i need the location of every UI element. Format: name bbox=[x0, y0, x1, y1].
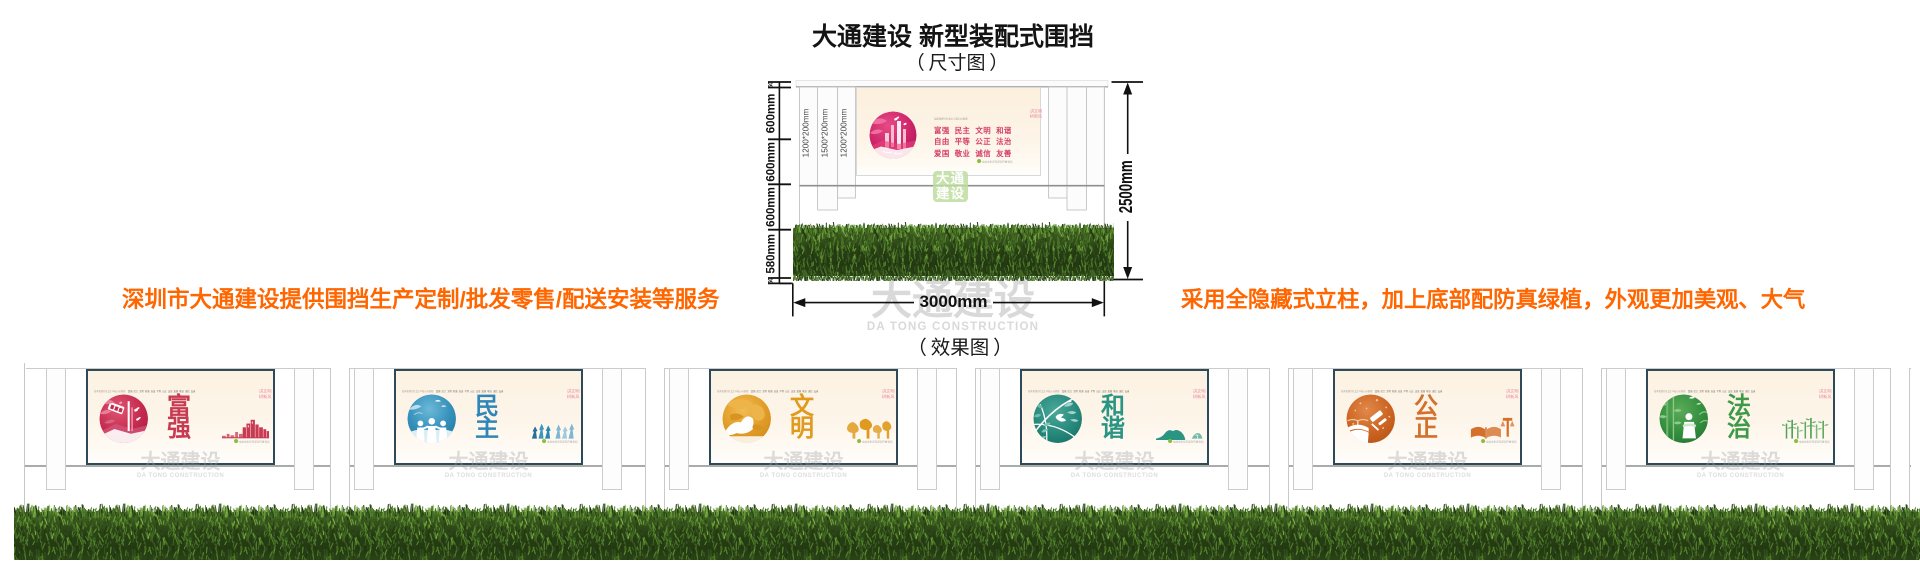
svg-text:600mm: 600mm bbox=[766, 142, 778, 182]
svg-text:600mm: 600mm bbox=[766, 94, 778, 134]
svg-text:1500*200mm: 1500*200mm bbox=[821, 108, 830, 157]
svg-text:580mm: 580mm bbox=[766, 234, 778, 274]
svg-text:1200*200mm: 1200*200mm bbox=[840, 108, 849, 157]
svg-text:600mm: 600mm bbox=[766, 187, 778, 227]
svg-text:2500mm: 2500mm bbox=[1116, 160, 1136, 213]
svg-text:3000mm: 3000mm bbox=[919, 292, 987, 311]
svg-text:60: 60 bbox=[769, 81, 775, 88]
svg-text:1200*200mm: 1200*200mm bbox=[802, 108, 811, 157]
svg-text:60: 60 bbox=[769, 277, 775, 284]
